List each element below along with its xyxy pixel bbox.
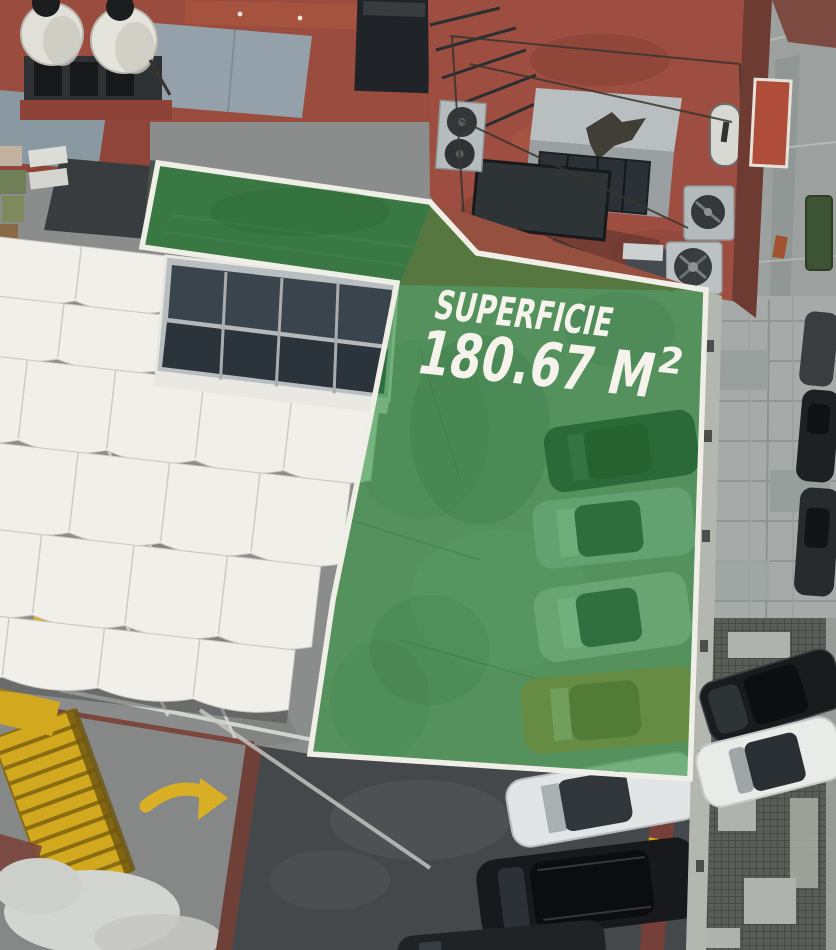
hvac-fan-unit — [684, 186, 734, 240]
water-heater-cylinder — [710, 104, 740, 166]
aerial-property-photo: SUPERFICIE 180.67 M2 — [0, 0, 836, 950]
rooftop-black-box — [354, 0, 431, 93]
street-planter — [806, 196, 832, 270]
red-ledge — [751, 79, 791, 167]
